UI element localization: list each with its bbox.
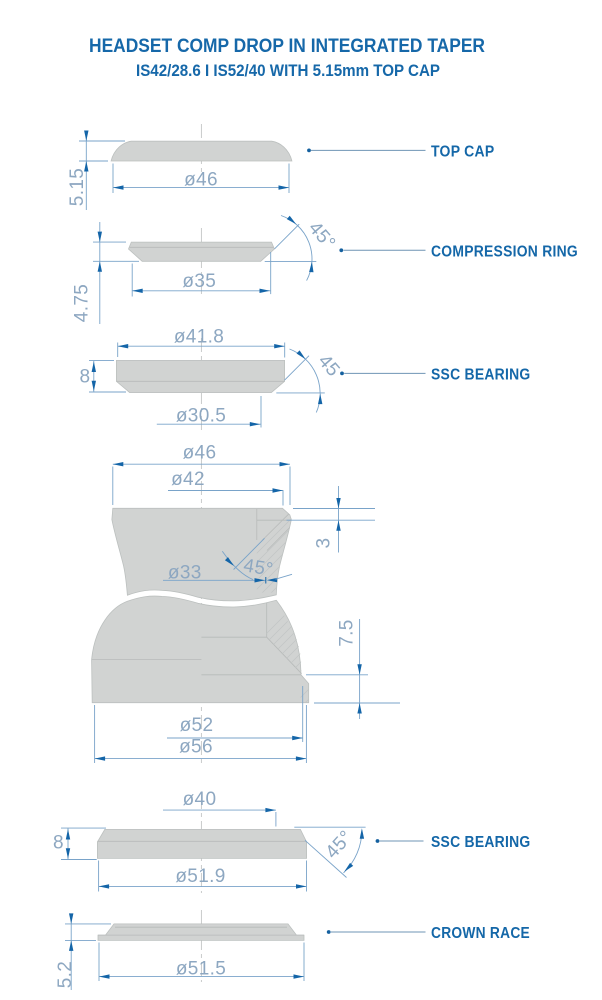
svg-text:8: 8 — [53, 833, 64, 854]
svg-text:5.2: 5.2 — [55, 961, 76, 988]
svg-text:3: 3 — [314, 538, 335, 549]
svg-text:TOP CAP: TOP CAP — [431, 144, 495, 161]
svg-text:IS42/28.6 I IS52/40 WITH 5.15m: IS42/28.6 I IS52/40 WITH 5.15mm TOP CAP — [136, 62, 440, 80]
svg-text:ø41.8: ø41.8 — [174, 327, 224, 348]
svg-text:ø46: ø46 — [183, 443, 217, 464]
svg-text:ø46: ø46 — [184, 170, 218, 191]
svg-text:ø33: ø33 — [168, 562, 202, 583]
svg-text:ø42: ø42 — [171, 469, 205, 490]
svg-text:ø51.5: ø51.5 — [176, 958, 226, 979]
svg-text:ø30.5: ø30.5 — [176, 406, 226, 427]
svg-text:7.5: 7.5 — [337, 619, 358, 646]
svg-text:ø51.9: ø51.9 — [175, 866, 225, 887]
svg-text:5.15: 5.15 — [67, 168, 88, 206]
svg-text:ø40: ø40 — [183, 789, 217, 810]
svg-text:HEADSET COMP DROP IN INTEGRATE: HEADSET COMP DROP IN INTEGRATED TAPER — [89, 35, 485, 57]
svg-text:SSC BEARING: SSC BEARING — [431, 367, 531, 384]
svg-text:ø52: ø52 — [180, 715, 214, 736]
svg-text:COMPRESSION RING: COMPRESSION RING — [431, 243, 578, 260]
svg-text:4.75: 4.75 — [72, 284, 93, 322]
svg-text:ø56: ø56 — [179, 737, 213, 758]
svg-text:SSC BEARING: SSC BEARING — [431, 834, 531, 851]
svg-text:8: 8 — [80, 367, 91, 388]
svg-text:CROWN RACE: CROWN RACE — [431, 925, 530, 942]
svg-text:ø35: ø35 — [182, 271, 216, 292]
